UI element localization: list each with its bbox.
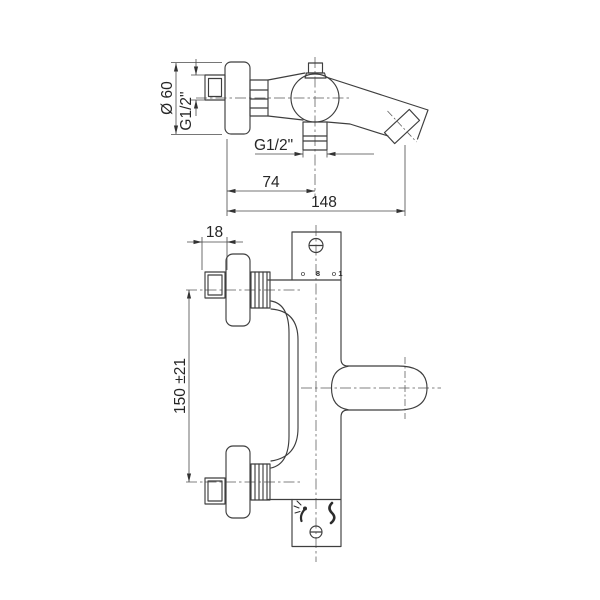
- dimension-150: 150 ±21: [172, 290, 191, 482]
- dimension-18: 18: [187, 224, 243, 270]
- dimension-label-outlet-thread: G1/2": [254, 137, 293, 154]
- wall-union-nut-inner: [209, 79, 222, 97]
- dimension-label-148: 148: [311, 194, 337, 211]
- temp-scale-mark-1: o: [301, 269, 305, 278]
- upper-union-nut-inner: [208, 275, 222, 295]
- shower-spray-icon: [294, 501, 307, 521]
- dimension-148: 148: [227, 145, 405, 216]
- side-view: Ø 60 G1/2" G1/2" 74 148: [159, 57, 428, 216]
- dimension-label-74: 74: [262, 174, 280, 191]
- temp-scale-mark-3: o: [332, 269, 336, 278]
- temp-scale-mark-4: 1: [338, 269, 342, 278]
- connection-nut-facets: [250, 90, 268, 108]
- dimension-wall-thread: G1/2": [178, 59, 205, 131]
- flow-plate: [292, 500, 341, 547]
- aerator: [384, 109, 419, 143]
- mixer-tap-drawing: Ø 60 G1/2" G1/2" 74 148: [0, 0, 600, 600]
- spout: [326, 77, 428, 139]
- dimension-outlet-thread: G1/2": [254, 137, 374, 158]
- body-pipe-inner: [271, 301, 289, 468]
- temp-scale-mark-2: 8: [316, 269, 320, 278]
- flow-handle-plate: [292, 500, 341, 547]
- bath-flow-icon: [330, 503, 335, 523]
- dimension-label-150: 150 ±21: [172, 358, 189, 414]
- top-knob: [309, 63, 323, 73]
- technical-drawing-page: Ø 60 G1/2" G1/2" 74 148: [0, 0, 600, 600]
- body-right-edge: [341, 280, 348, 500]
- dimension-label-wall-thread: G1/2": [178, 91, 195, 130]
- body-edge-extensions: [268, 280, 292, 500]
- temperature-handle-plate: o 8 o 1: [292, 232, 343, 280]
- lower-union-nut-inner: [208, 481, 222, 501]
- dimension-label-diameter: Ø 60: [159, 81, 176, 115]
- dimension-label-18: 18: [206, 224, 223, 241]
- body-pipe-outer: [271, 309, 298, 461]
- front-view: o 8 o 1 18: [172, 224, 441, 562]
